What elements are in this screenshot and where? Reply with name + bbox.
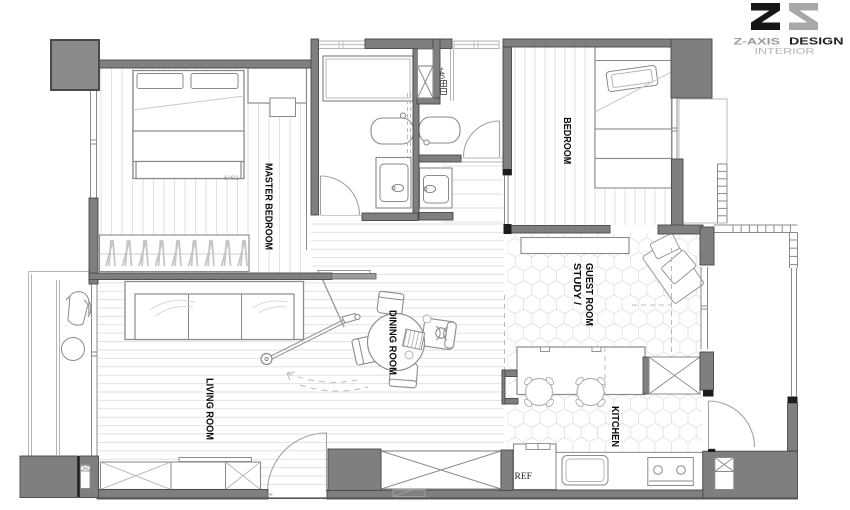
svg-text:+40: +40 bbox=[438, 67, 445, 79]
svg-text:STUDY /: STUDY / bbox=[571, 263, 582, 305]
svg-text:6#6'2: 6#6'2 bbox=[224, 176, 239, 182]
svg-text:BEDROOM: BEDROOM bbox=[561, 117, 572, 164]
svg-text:INTERIOR: INTERIOR bbox=[755, 46, 815, 56]
svg-text:MASTER BEDROOM: MASTER BEDROOM bbox=[263, 163, 274, 250]
svg-text:DINING ROOM: DINING ROOM bbox=[387, 310, 398, 375]
svg-text:REF: REF bbox=[515, 472, 532, 482]
svg-text:GUEST ROOM: GUEST ROOM bbox=[583, 263, 594, 326]
svg-text:LIVING ROOM: LIVING ROOM bbox=[204, 378, 215, 440]
svg-text:KITCHEN: KITCHEN bbox=[609, 406, 620, 447]
